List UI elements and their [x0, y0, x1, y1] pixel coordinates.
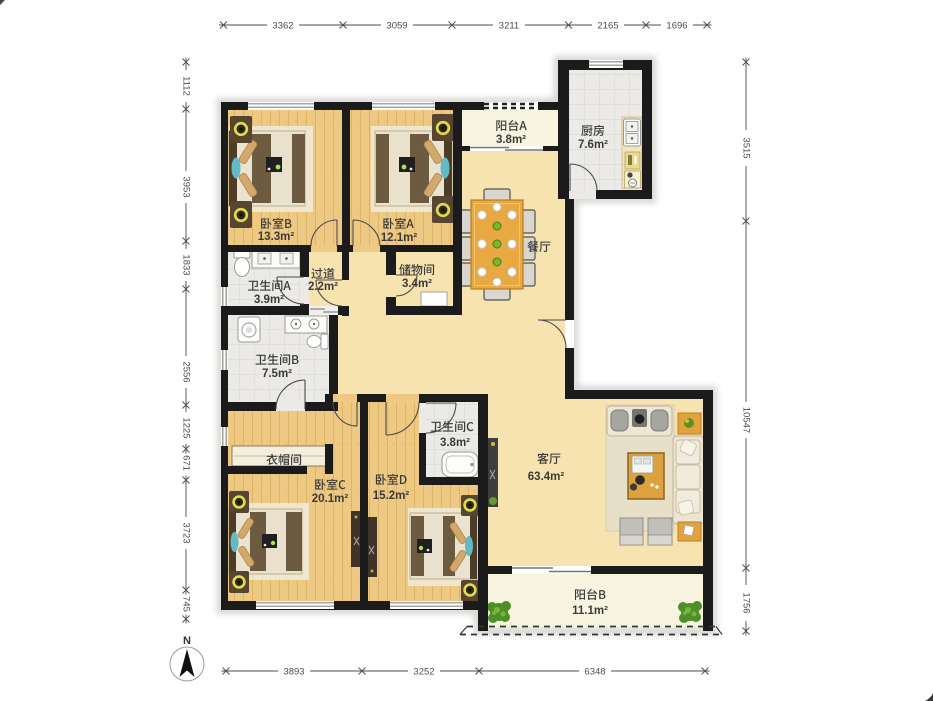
svg-text:3211: 3211 — [499, 21, 519, 32]
svg-text:1756: 1756 — [741, 592, 752, 613]
svg-text:3362: 3362 — [272, 21, 293, 32]
svg-text:671: 671 — [181, 455, 192, 471]
svg-text:3059: 3059 — [386, 21, 407, 32]
svg-text:3.8m²: 3.8m² — [440, 437, 470, 449]
svg-text:3893: 3893 — [283, 667, 304, 678]
svg-text:3.9m²: 3.9m² — [254, 294, 284, 306]
svg-text:13.3m²: 13.3m² — [258, 231, 295, 243]
svg-text:6348: 6348 — [584, 667, 605, 678]
svg-text:7.6m²: 7.6m² — [578, 139, 608, 151]
svg-text:N: N — [183, 635, 191, 647]
svg-text:7.5m²: 7.5m² — [262, 368, 292, 380]
svg-text:1112: 1112 — [181, 76, 192, 96]
svg-text:3723: 3723 — [181, 522, 192, 543]
svg-text:11.1m²: 11.1m² — [572, 605, 608, 617]
svg-text:1833: 1833 — [181, 254, 192, 275]
svg-text:745: 745 — [181, 596, 192, 612]
svg-text:1696: 1696 — [666, 21, 687, 32]
svg-text:2.2m²: 2.2m² — [308, 281, 338, 293]
svg-text:15.2m²: 15.2m² — [373, 490, 410, 502]
svg-text:3252: 3252 — [413, 667, 434, 678]
svg-text:63.4m²: 63.4m² — [528, 471, 565, 483]
svg-text:20.1m²: 20.1m² — [312, 493, 349, 505]
svg-text:2556: 2556 — [181, 361, 192, 382]
svg-text:3.8m²: 3.8m² — [496, 134, 526, 146]
svg-text:1225: 1225 — [181, 417, 192, 438]
svg-text:3515: 3515 — [741, 137, 752, 158]
svg-text:3.4m²: 3.4m² — [402, 278, 432, 290]
svg-text:3953: 3953 — [181, 176, 192, 197]
svg-text:2165: 2165 — [597, 21, 618, 32]
svg-text:10547: 10547 — [741, 407, 752, 433]
svg-text:12.1m²: 12.1m² — [381, 232, 418, 244]
